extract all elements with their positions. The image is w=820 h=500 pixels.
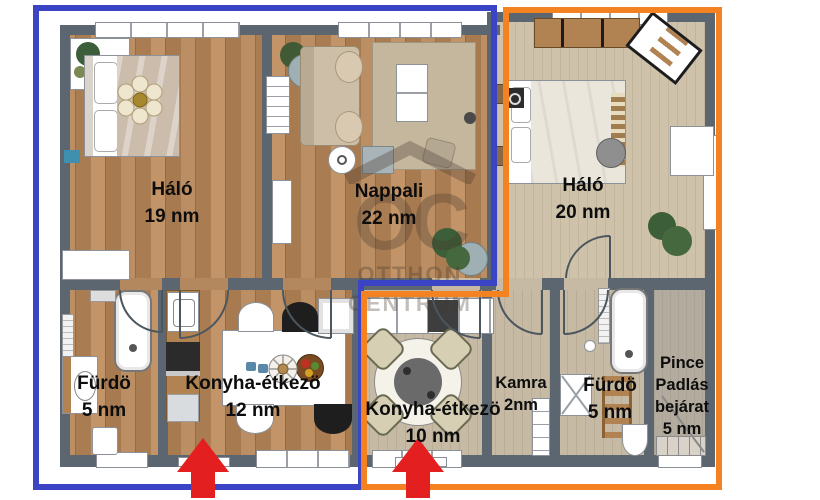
plant-icon	[662, 226, 692, 256]
room-name: Konyha-étkezö	[365, 396, 500, 423]
room-label-halo-20: Háló 20 nm	[556, 172, 611, 226]
wall-nappali-halo20	[487, 12, 497, 278]
door-gap	[496, 278, 542, 290]
double-bed	[508, 80, 626, 184]
room-label-nappali: Nappali 22 nm	[355, 178, 424, 232]
room-area: 5 nm	[583, 399, 637, 426]
window	[256, 450, 350, 468]
bathtub	[610, 288, 648, 374]
room-name: Konyha-étkezö	[185, 370, 320, 397]
stool	[584, 340, 596, 352]
room-area: 2nm	[495, 394, 546, 416]
room-name: Fürdö	[77, 370, 131, 397]
door-gap	[180, 278, 228, 290]
window	[338, 22, 462, 38]
sideboard	[534, 18, 640, 48]
room-area: 12 nm	[185, 397, 320, 424]
door-gap	[432, 278, 480, 290]
room-name: Háló	[556, 172, 611, 199]
entrance-threshold	[178, 457, 230, 467]
entrance-threshold	[395, 457, 447, 467]
drain-icon	[129, 344, 137, 352]
room-label-kamra: Kamra 2nm	[495, 372, 546, 416]
plant-icon	[446, 246, 470, 270]
bookshelf	[266, 76, 290, 134]
room-name: Nappali	[355, 178, 424, 205]
wall-halo19-nappali	[262, 25, 272, 278]
stove	[428, 300, 458, 332]
sofa	[300, 46, 360, 146]
room-label-konyha-10: Konyha-étkezö 10 nm	[365, 396, 500, 450]
bathtub	[114, 290, 152, 372]
floor-outlet	[464, 112, 476, 124]
room-label-halo-19: Háló 19 nm	[145, 176, 200, 230]
room-name-line: Padlás	[655, 374, 709, 396]
toilet	[622, 424, 648, 456]
kitchen-sink	[167, 292, 199, 332]
room-area: 19 nm	[145, 203, 200, 230]
room-area: 20 nm	[556, 199, 611, 226]
desk	[670, 126, 714, 176]
tv-table	[396, 64, 428, 122]
room-area: 10 nm	[365, 423, 500, 450]
floorplan: OC OTTHON CENTRUM	[0, 0, 820, 500]
washing-machine	[92, 427, 118, 455]
double-bed	[84, 55, 180, 157]
door-gap	[283, 278, 331, 290]
room-label-furdo-left: Fürdö 5 nm	[77, 370, 131, 424]
heater-icon	[504, 88, 524, 108]
lamp-icon	[337, 155, 347, 165]
room-name-line: Pince	[655, 352, 709, 374]
nightstand	[494, 146, 508, 166]
room-name: Háló	[145, 176, 200, 203]
high-chair	[318, 298, 354, 334]
shelf	[90, 290, 116, 302]
room-label-pince: Pince Padlás bejárat 5 nm	[655, 352, 709, 440]
drain-icon	[625, 350, 633, 358]
room-area: 5 nm	[77, 397, 131, 424]
door-leaf	[272, 180, 292, 244]
bath-mat	[64, 150, 80, 163]
room-area: 5 nm	[655, 418, 709, 440]
window	[95, 22, 240, 38]
basket	[596, 138, 626, 168]
room-label-furdo-right: Fürdö 5 nm	[583, 372, 637, 426]
radiator	[598, 288, 610, 344]
picture-frame	[362, 146, 394, 174]
chair	[282, 302, 318, 332]
room-label-konyha-12: Konyha-étkezö 12 nm	[185, 370, 320, 424]
room-name: Fürdö	[583, 372, 637, 399]
room-name-line: bejárat	[655, 396, 709, 418]
room-area: 22 nm	[355, 205, 424, 232]
wall-kamra-furdo	[550, 290, 560, 455]
dresser	[62, 250, 130, 280]
room-name: Kamra	[495, 372, 546, 394]
chair	[238, 302, 274, 332]
